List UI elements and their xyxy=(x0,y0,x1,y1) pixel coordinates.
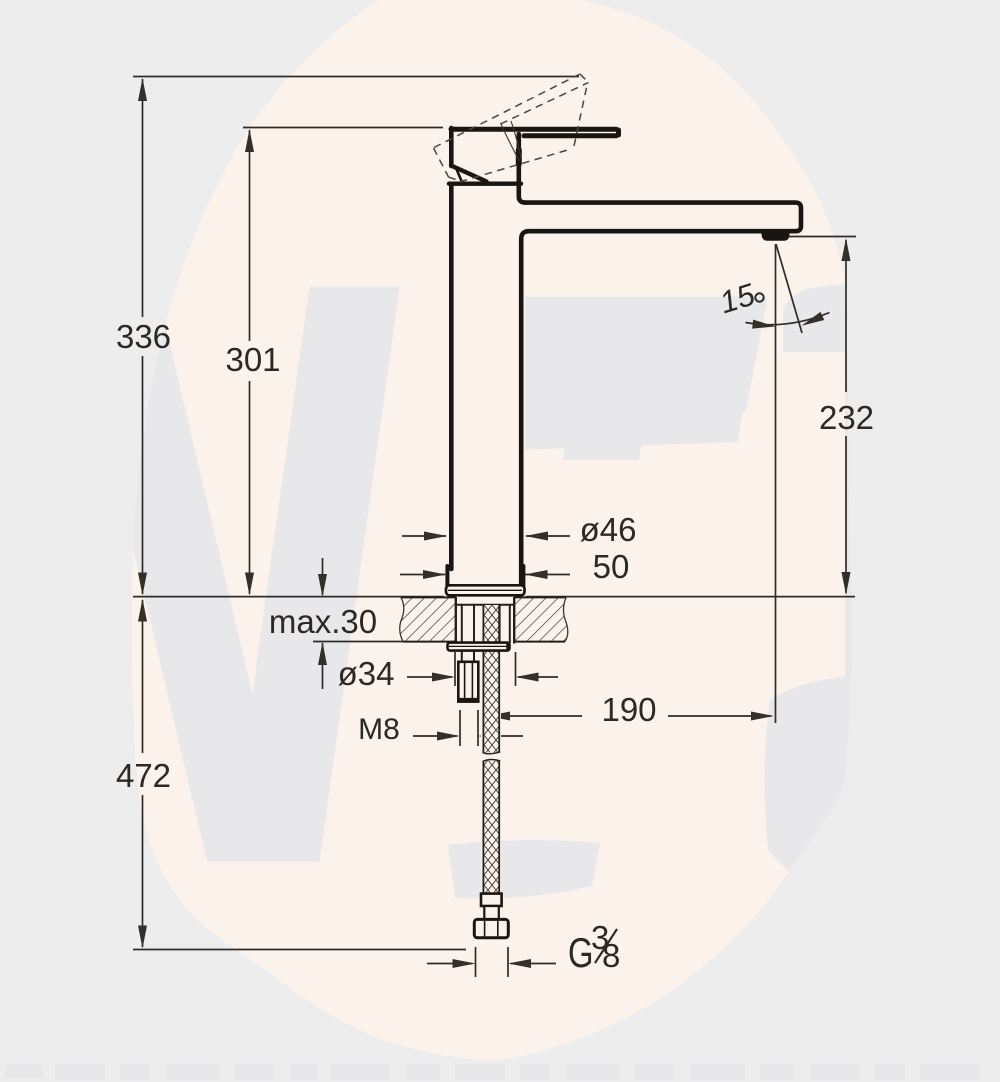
svg-text:232: 232 xyxy=(819,399,874,436)
svg-text:ø46: ø46 xyxy=(580,511,637,548)
svg-text:301: 301 xyxy=(225,341,280,378)
svg-text:50: 50 xyxy=(593,548,630,585)
svg-text:472: 472 xyxy=(116,757,171,794)
svg-text:G: G xyxy=(568,929,593,976)
svg-text:M8: M8 xyxy=(358,713,400,746)
svg-text:ø34: ø34 xyxy=(338,655,395,692)
svg-text:8: 8 xyxy=(602,937,620,974)
svg-text:336: 336 xyxy=(116,318,171,355)
svg-text:190: 190 xyxy=(601,691,656,728)
svg-text:max.30: max.30 xyxy=(269,603,377,640)
